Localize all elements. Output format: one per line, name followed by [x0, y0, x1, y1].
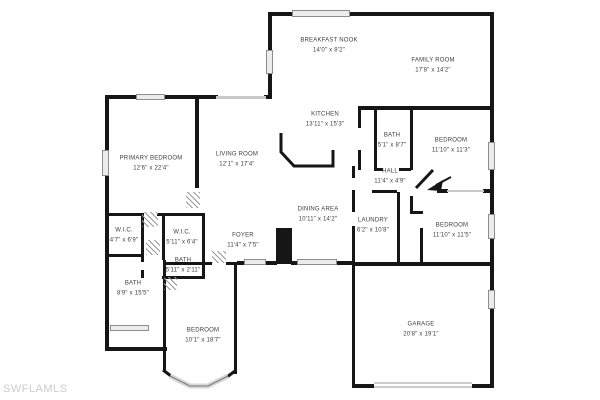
room-dims: 20'8" x 19'1" [403, 330, 439, 340]
room-dims: 12'6" x 22'4" [120, 164, 183, 174]
room-label-bath-2: BATH5'11" x 2'11" [166, 256, 201, 275]
room-name: LIVING ROOM [216, 150, 258, 160]
room-label-bedroom-3: BEDROOM10'1" x 18'7" [185, 326, 221, 345]
room-dims: 6'2" x 10'8" [357, 226, 389, 236]
room-name: FOYER [227, 231, 259, 241]
room-dims: 5'11" x 2'11" [166, 266, 201, 276]
room-label-kitchen: KITCHEN13'11" x 15'3" [306, 110, 345, 129]
room-label-dining-area: DINING AREA10'11" x 14'2" [298, 205, 339, 224]
room-dims: 11'4" x 7'5" [227, 241, 259, 251]
plan-details-layer [0, 0, 600, 400]
room-label-foyer: FOYER11'4" x 7'5" [227, 231, 259, 250]
bay-wall-left [163, 370, 171, 376]
room-dims: 8'9" x 15'5" [117, 289, 149, 299]
room-label-wic-2: W.I.C.5'11" x 6'4" [166, 228, 198, 247]
room-dims: 5'11" x 6'4" [166, 238, 198, 248]
room-name: LAUNDRY [357, 216, 389, 226]
room-name: BEDROOM [185, 326, 221, 336]
room-dims: 10'11" x 14'2" [298, 215, 339, 225]
room-name: GARAGE [403, 320, 439, 330]
room-label-bath-3: BATH8'9" x 15'5" [117, 279, 149, 298]
kitchen-counter [281, 133, 333, 166]
room-name: PRIMARY BEDROOM [120, 154, 183, 164]
room-dims: 17'8" x 14'2" [411, 66, 454, 76]
room-dims: 4'7" x 6'9" [110, 236, 138, 246]
room-label-breakfast-nook: BREAKFAST NOOK14'0" x 8'2" [300, 36, 357, 55]
room-label-laundry: LAUNDRY6'2" x 10'8" [357, 216, 389, 235]
room-dims: 13'11" x 15'3" [306, 120, 345, 130]
room-dims: 12'1" x 17'4" [216, 160, 258, 170]
room-name: KITCHEN [306, 110, 345, 120]
room-name: BATH [117, 279, 149, 289]
room-name: BATH [166, 256, 201, 266]
room-label-primary-bedroom: PRIMARY BEDROOM12'6" x 22'4" [120, 154, 183, 173]
room-name: FAMILY ROOM [411, 56, 454, 66]
room-label-bedroom-1: BEDROOM11'10" x 11'3" [432, 136, 470, 155]
room-name: DINING AREA [298, 205, 339, 215]
watermark: SWFLAMLS [3, 383, 68, 395]
room-name: BATH [378, 131, 406, 141]
door-swing-arrow-head [427, 180, 443, 191]
room-label-wic-1: W.I.C.4'7" x 6'9" [110, 226, 138, 245]
bay-wall-right [227, 371, 235, 377]
room-name: BREAKFAST NOOK [300, 36, 357, 46]
room-dims: 10'1" x 18'7" [185, 336, 221, 346]
room-label-family-room: FAMILY ROOM17'8" x 14'2" [411, 56, 454, 75]
hall-diagonal-wall [416, 170, 433, 188]
floor-plan: BREAKFAST NOOK14'0" x 8'2" FAMILY ROOM17… [0, 0, 600, 400]
room-dims: 11'10" x 11'3" [432, 146, 470, 156]
room-name: W.I.C. [166, 228, 198, 238]
bay-window-right-line [208, 376, 228, 386]
room-name: HALL [374, 167, 406, 177]
room-name: BEDROOM [433, 221, 471, 231]
room-dims: 11'4" x 4'9" [374, 177, 406, 187]
room-label-bath-1: BATH5'1" x 8'7" [378, 131, 406, 150]
bay-window-left-line [170, 376, 190, 386]
room-dims: 14'0" x 8'2" [300, 46, 357, 56]
room-name: W.I.C. [110, 226, 138, 236]
room-label-garage: GARAGE20'8" x 19'1" [403, 320, 439, 339]
room-name: BEDROOM [432, 136, 470, 146]
room-label-bedroom-2: BEDROOM11'10" x 11'5" [433, 221, 471, 240]
room-label-living-room: LIVING ROOM12'1" x 17'4" [216, 150, 258, 169]
room-dims: 5'1" x 8'7" [378, 141, 406, 151]
room-dims: 11'10" x 11'5" [433, 231, 471, 241]
room-label-hall: HALL11'4" x 4'9" [374, 167, 406, 186]
